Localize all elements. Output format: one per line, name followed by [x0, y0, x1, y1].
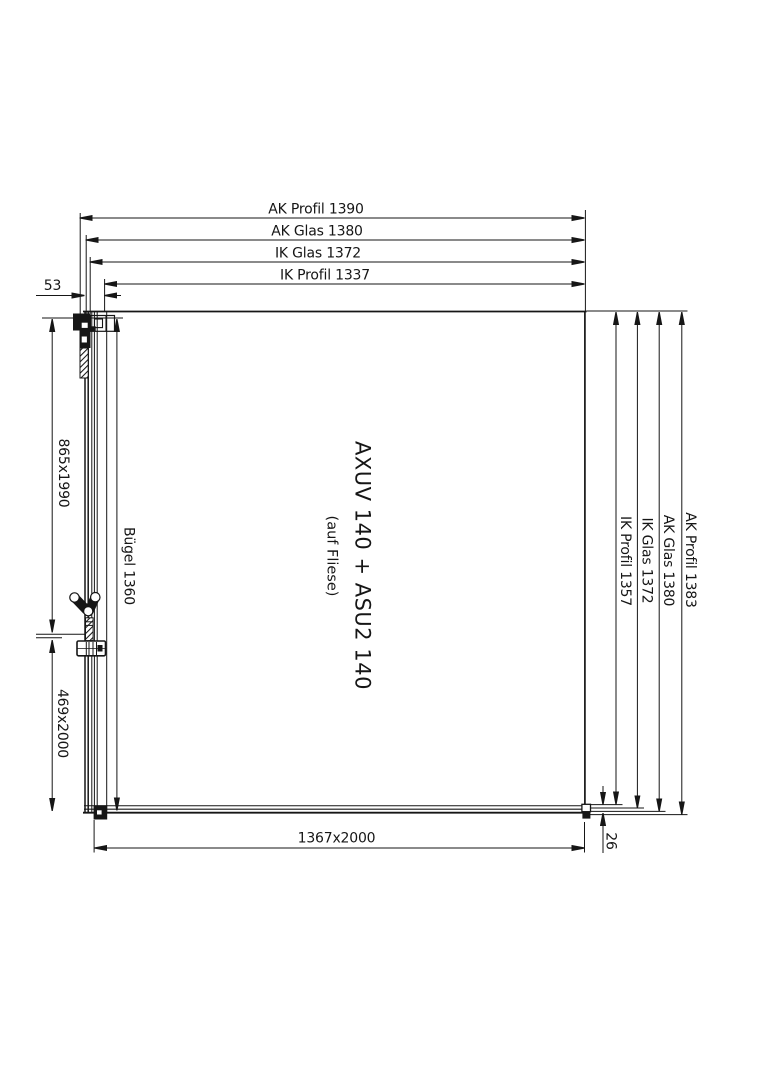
- dim-label-ak-glas-top: AK Glas 1380: [271, 224, 363, 240]
- shower-enclosure-technical-drawing: AK Profil 1390 AK Glas 1380 IK Glas 1372…: [0, 0, 764, 1080]
- top-left-bracket: [73, 314, 115, 379]
- dim-label-buegel: Bügel 1360: [121, 527, 137, 605]
- dim-label-ak-profil-top: AK Profil 1390: [268, 202, 363, 218]
- product-subtitle: (auf Fliese): [324, 516, 340, 597]
- dimension-lines-left: [36, 320, 117, 811]
- buegel-clamp: [77, 618, 106, 656]
- dim-label-ik-profil-right: IK Profil 1357: [617, 516, 633, 606]
- technical-drawing-page: AK Profil 1390 AK Glas 1380 IK Glas 1372…: [0, 0, 764, 1080]
- product-title: AXUV 140 + ASU2 140: [351, 441, 375, 690]
- dim-label-offset-26: 26: [603, 832, 619, 850]
- dim-label-side-glass: 469x2000: [54, 689, 70, 758]
- dim-label-ik-glas-top: IK Glas 1372: [275, 246, 361, 262]
- dim-label-ak-glas-right: AK Glas 1380: [660, 515, 676, 607]
- product-labels: AXUV 140 + ASU2 140 (auf Fliese): [324, 441, 375, 690]
- dim-label-bottom-main: 1367x2000: [298, 831, 376, 847]
- bottom-right-bracket: [582, 804, 591, 818]
- dim-label-ak-profil-right: AK Profil 1383: [682, 512, 698, 607]
- dim-label-offset-53: 53: [44, 278, 61, 294]
- bottom-left-bracket: [94, 805, 108, 819]
- dim-label-door-glass: 865x1990: [55, 438, 71, 507]
- dim-label-ik-profil-top: IK Profil 1337: [280, 268, 370, 284]
- dim-label-ik-glas-right: IK Glas 1372: [639, 517, 655, 603]
